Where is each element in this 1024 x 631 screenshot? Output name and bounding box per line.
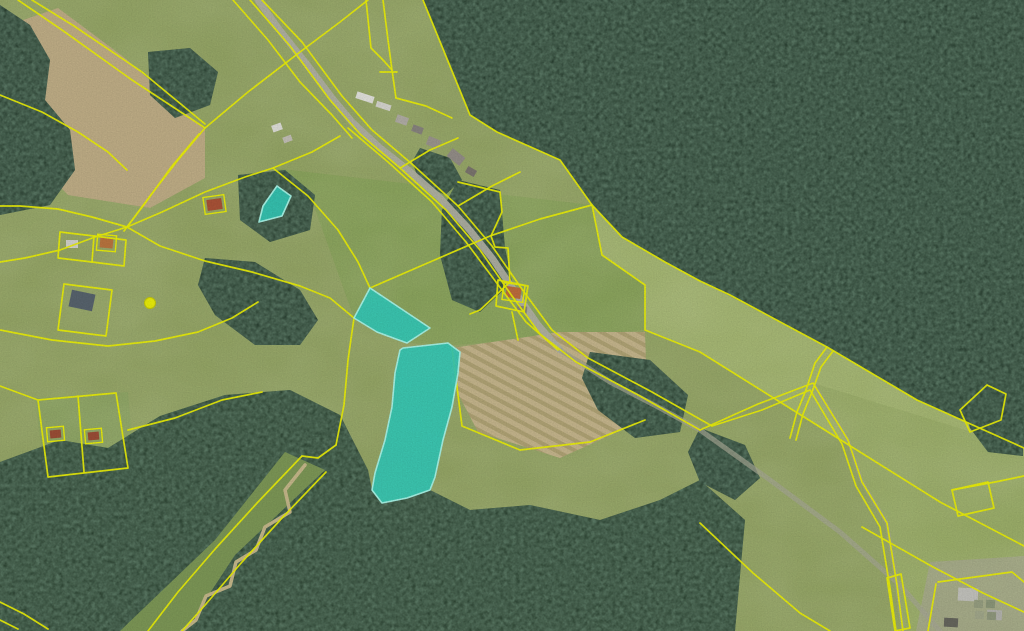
map-viewport[interactable] [0,0,1024,631]
map-canvas[interactable] [0,0,1024,631]
photo-grain [0,0,1024,631]
